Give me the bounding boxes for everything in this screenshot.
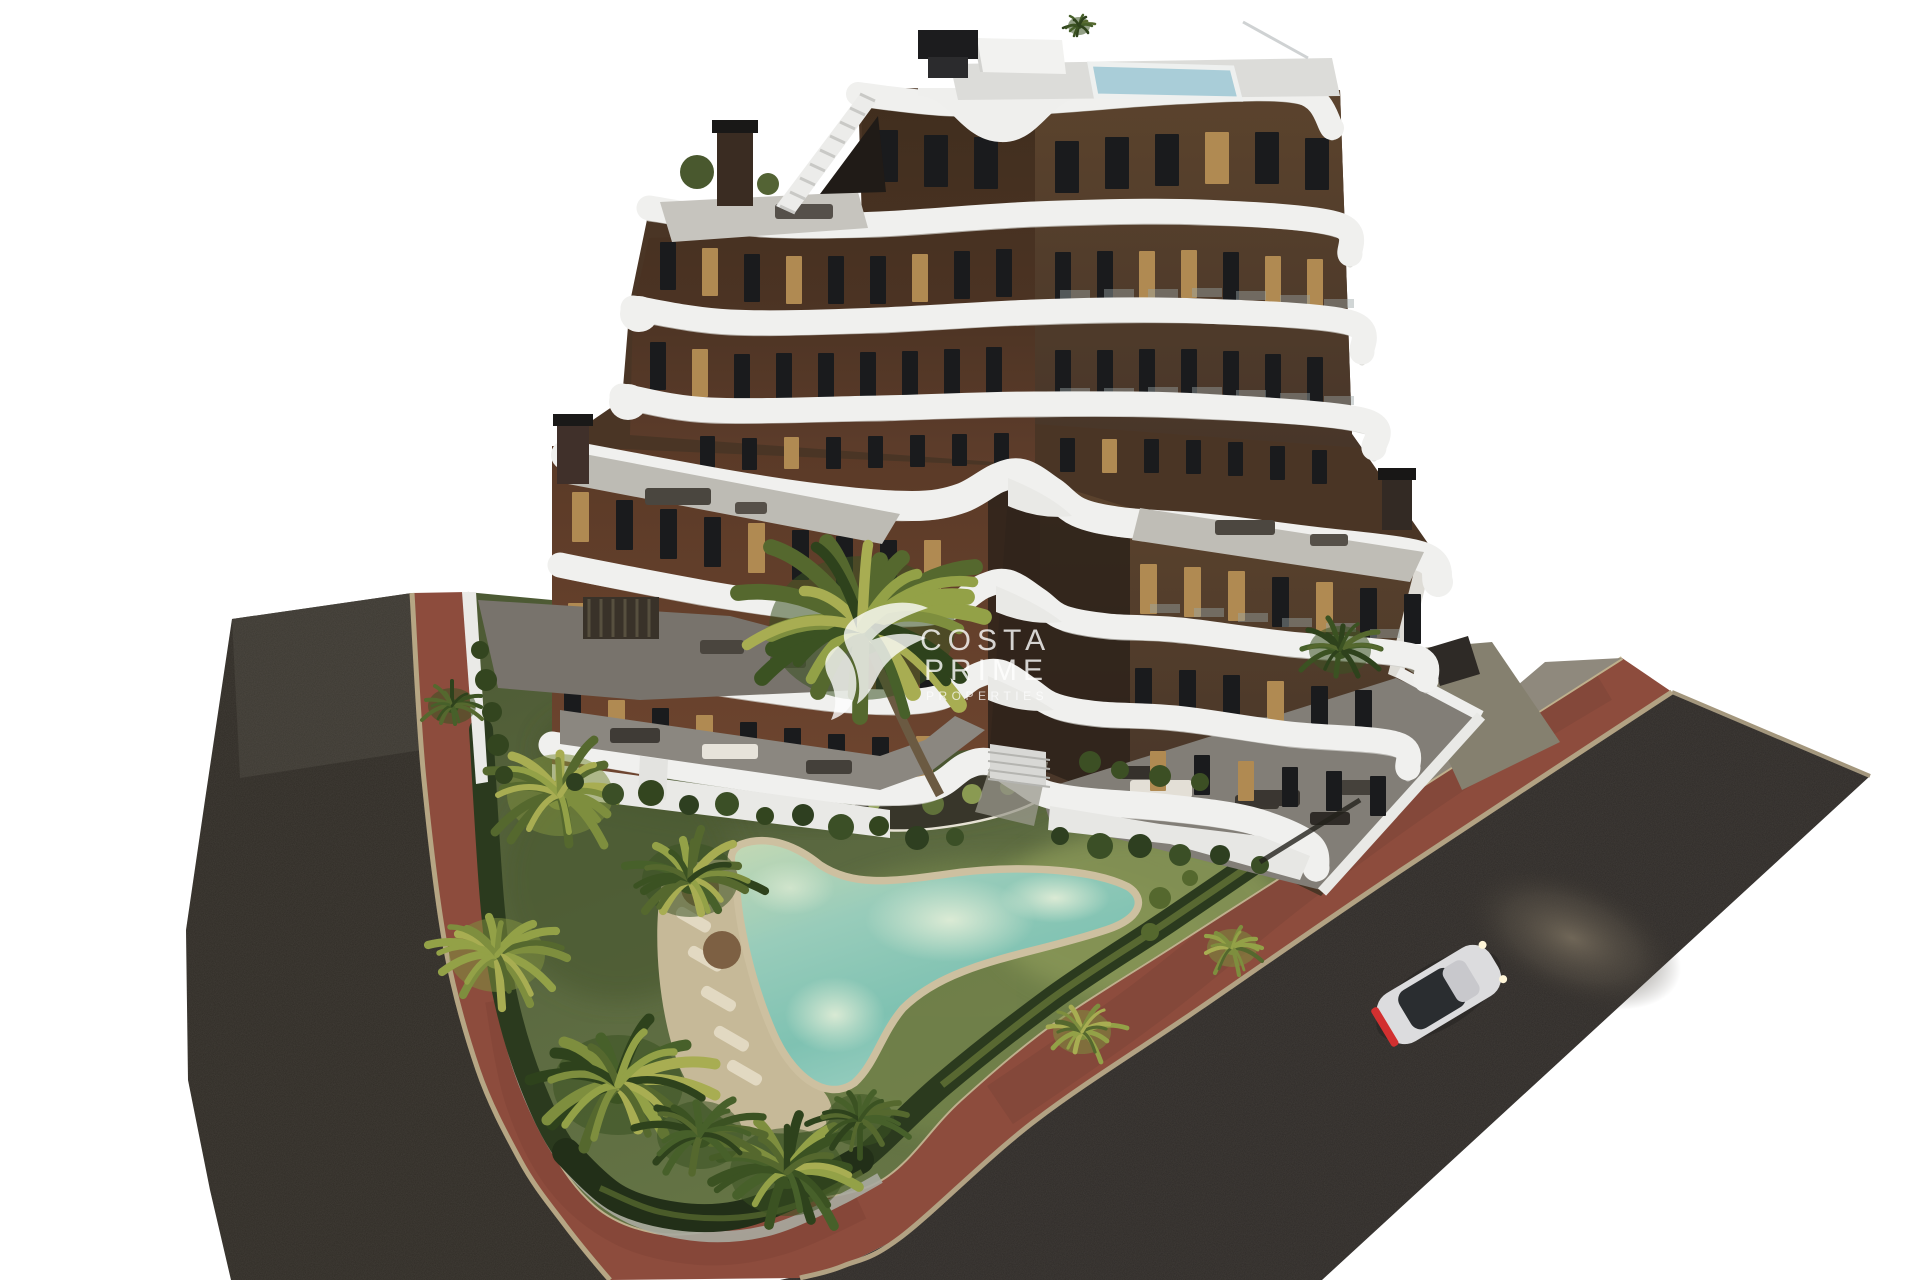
svg-text:PROPERTIES: PROPERTIES [926,689,1048,703]
svg-text:COSTA: COSTA [920,624,1051,657]
svg-text:PRIME: PRIME [924,654,1049,687]
